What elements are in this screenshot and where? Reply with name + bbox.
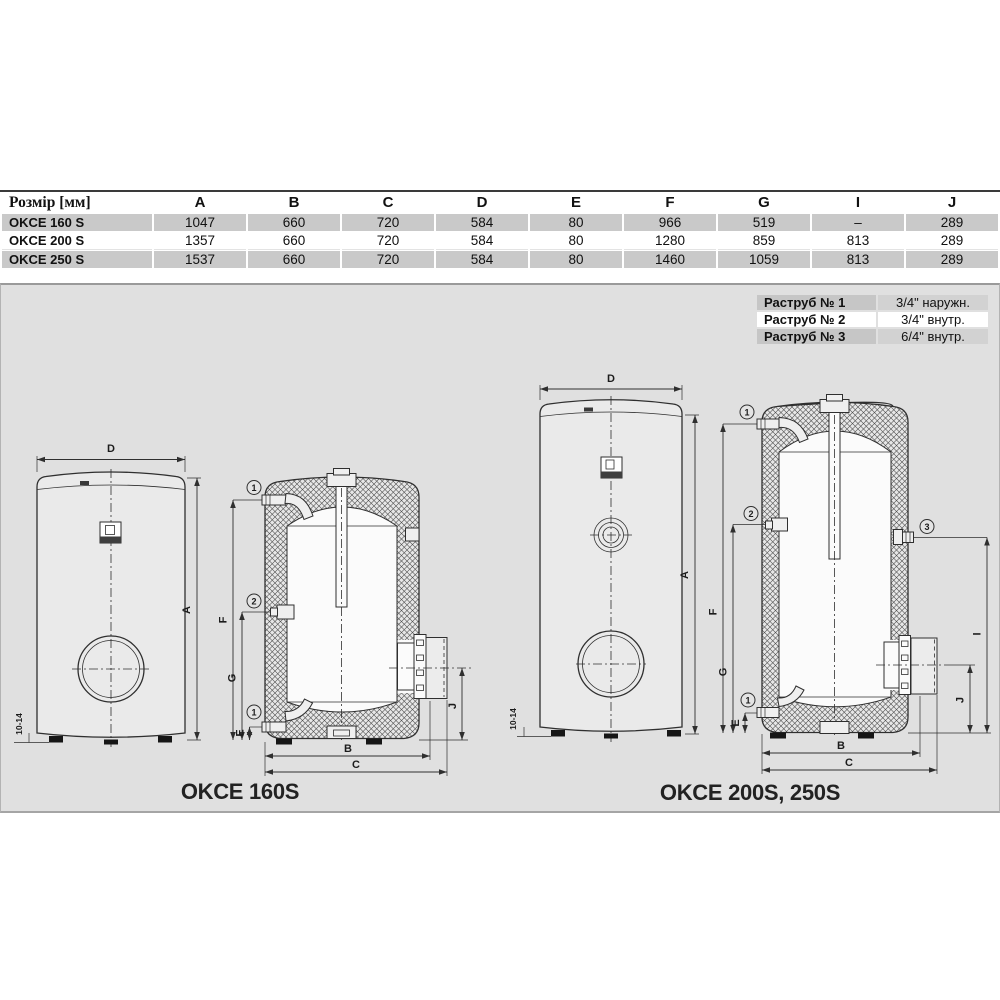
dimension-value: 1280 [624,232,716,250]
lid-logo [80,481,89,485]
model-label: OKCE 200 S [2,232,152,250]
column-header-J: J [906,193,998,213]
dimension-value: 720 [342,214,434,231]
foot [858,733,874,739]
dimension-label-D: D [607,373,615,385]
foot [158,736,172,743]
okce160s-cross-section: 1 2 1 [218,469,472,777]
sensor-pocket [406,528,420,541]
dimension-value: – [812,214,904,231]
dimension-value: 1537 [154,251,246,268]
dimension-value: 584 [436,214,528,231]
column-header-C: C [342,193,434,213]
dimension-label-A: A [679,571,691,579]
dimension-value: 584 [436,251,528,268]
dimension-label-J: J [955,697,967,703]
dimension-E: E [730,713,745,733]
dimension-table-header-row: Розмір [мм] ABCDEFGIJ [2,193,998,213]
model-label: OKCE 250 S [2,251,152,268]
dimension-G: G [718,525,734,734]
callout-3: 3 [924,522,929,532]
callout-2: 2 [251,597,256,607]
dimension-table-title: Розмір [мм] [2,193,152,213]
dimension-F: F [708,424,724,733]
caption-okce-160s: OKCE 160S [110,779,370,805]
dimension-value: 1047 [154,214,246,231]
svg-text:10-14: 10-14 [14,713,24,735]
dimension-value: 720 [342,232,434,250]
dimension-value: 80 [530,214,622,231]
dimension-label-G: G [227,674,239,683]
dimension-value: 720 [342,251,434,268]
lid-logo [584,408,593,412]
spec-sheet: Розмір [мм] ABCDEFGIJ OKCE 160 S10476607… [0,0,1000,1000]
dimension-D: D [540,373,682,400]
dimension-table-row: OKCE 200 S1357660720584801280859813289 [2,232,998,250]
column-header-I: I [812,193,904,213]
dimension-value: 80 [530,232,622,250]
callout-1: 1 [745,696,750,706]
column-header-D: D [436,193,528,213]
dimension-label-C: C [352,759,360,771]
okce200s-cross-section: 1 2 3 1 [708,395,992,775]
foot [366,739,382,745]
top-fitting [820,395,849,413]
thermostat-cover [100,522,121,543]
dimension-label-F: F [708,608,720,615]
dimension-label-E: E [730,719,742,726]
dimension-F: F [218,500,234,740]
top-fitting [327,469,356,487]
dimension-value: 289 [906,251,998,268]
column-header-F: F [624,193,716,213]
heating-flange [389,635,471,699]
dimension-value: 813 [812,251,904,268]
dimension-value: 289 [906,214,998,231]
column-header-E: E [530,193,622,213]
dimension-value: 519 [718,214,810,231]
okce200s-front-view: D A 10-14 [508,373,699,742]
dimension-J: J [952,665,975,733]
dimension-value: 813 [812,232,904,250]
dimension-label-B: B [344,743,352,755]
technical-drawings: D A 10-14 [0,283,1000,813]
dimension-I: I [972,538,988,734]
column-header-A: A [154,193,246,213]
foot [276,739,292,745]
dimension-value: 1460 [624,251,716,268]
bottom-fitting [820,722,849,734]
dimension-label-J: J [447,703,459,709]
dimension-value: 1059 [718,251,810,268]
dimension-G: G [227,612,243,740]
callout-1: 1 [744,408,749,418]
dimension-D: D [37,443,185,472]
dimension-label-I: I [972,632,984,635]
dimension-value: 660 [248,251,340,268]
foot [104,740,118,745]
dimension-J: J [447,668,462,740]
foot [770,733,786,739]
dimension-value: 660 [248,232,340,250]
dimension-table-row: OKCE 160 S104766072058480966519–289 [2,214,998,231]
dimension-label-C: C [845,757,853,769]
okce160s-front-view: D A 10-14 [14,443,201,747]
dimension-table-body: OKCE 160 S104766072058480966519–289OKCE … [2,214,998,268]
svg-text:10-14: 10-14 [508,708,518,730]
dimension-value: 80 [530,251,622,268]
bottom-fitting [327,726,356,739]
foot [49,736,63,743]
heating-flange [876,636,952,695]
dimension-value: 1357 [154,232,246,250]
dimension-label-E: E [235,729,247,736]
column-header-B: B [248,193,340,213]
dimension-label-A: A [181,606,193,614]
callout-1: 1 [251,708,256,718]
dimension-value: 289 [906,232,998,250]
dimension-value: 660 [248,214,340,231]
model-label: OKCE 160 S [2,214,152,231]
callout-2: 2 [748,509,753,519]
caption-okce-200s-250s: OKCE 200S, 250S [620,780,880,806]
dimension-table: Розмір [мм] ABCDEFGIJ OKCE 160 S10476607… [0,190,1000,269]
callout-1: 1 [251,483,256,493]
dimension-label-F: F [218,616,230,623]
column-header-G: G [718,193,810,213]
foot [604,734,618,739]
dimension-label-D: D [107,443,115,455]
dimension-table-row: OKCE 250 S15376607205848014601059813289 [2,251,998,268]
dimension-value: 584 [436,232,528,250]
dimension-value: 859 [718,232,810,250]
dimension-label-G: G [718,668,730,677]
dimension-value: 966 [624,214,716,231]
thermostat-cover [601,457,622,478]
foot [551,730,565,737]
foot [667,730,681,737]
dimension-label-B: B [837,740,845,752]
